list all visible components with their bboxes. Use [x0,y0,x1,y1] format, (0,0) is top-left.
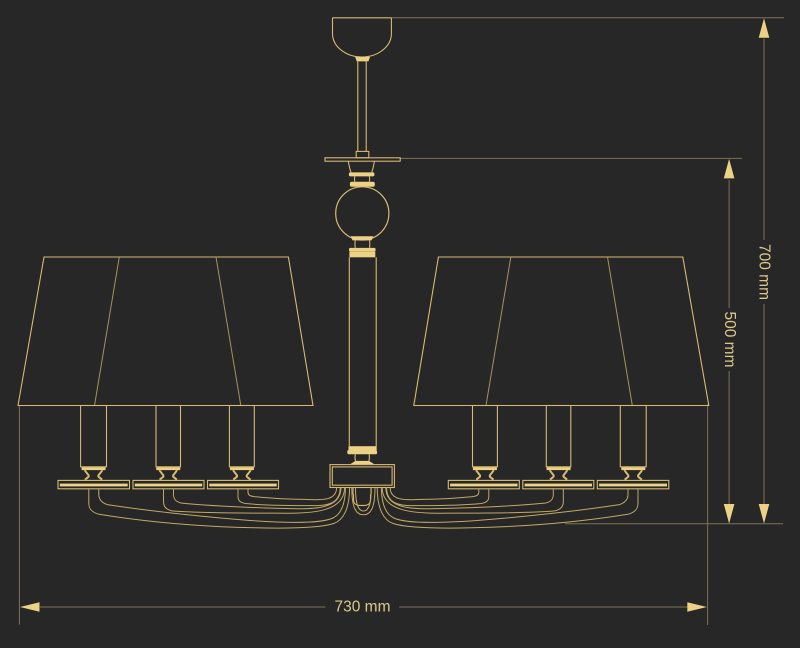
svg-text:700 mm: 700 mm [755,244,772,300]
svg-text:730 mm: 730 mm [335,599,391,616]
svg-text:500 mm: 500 mm [721,312,738,368]
